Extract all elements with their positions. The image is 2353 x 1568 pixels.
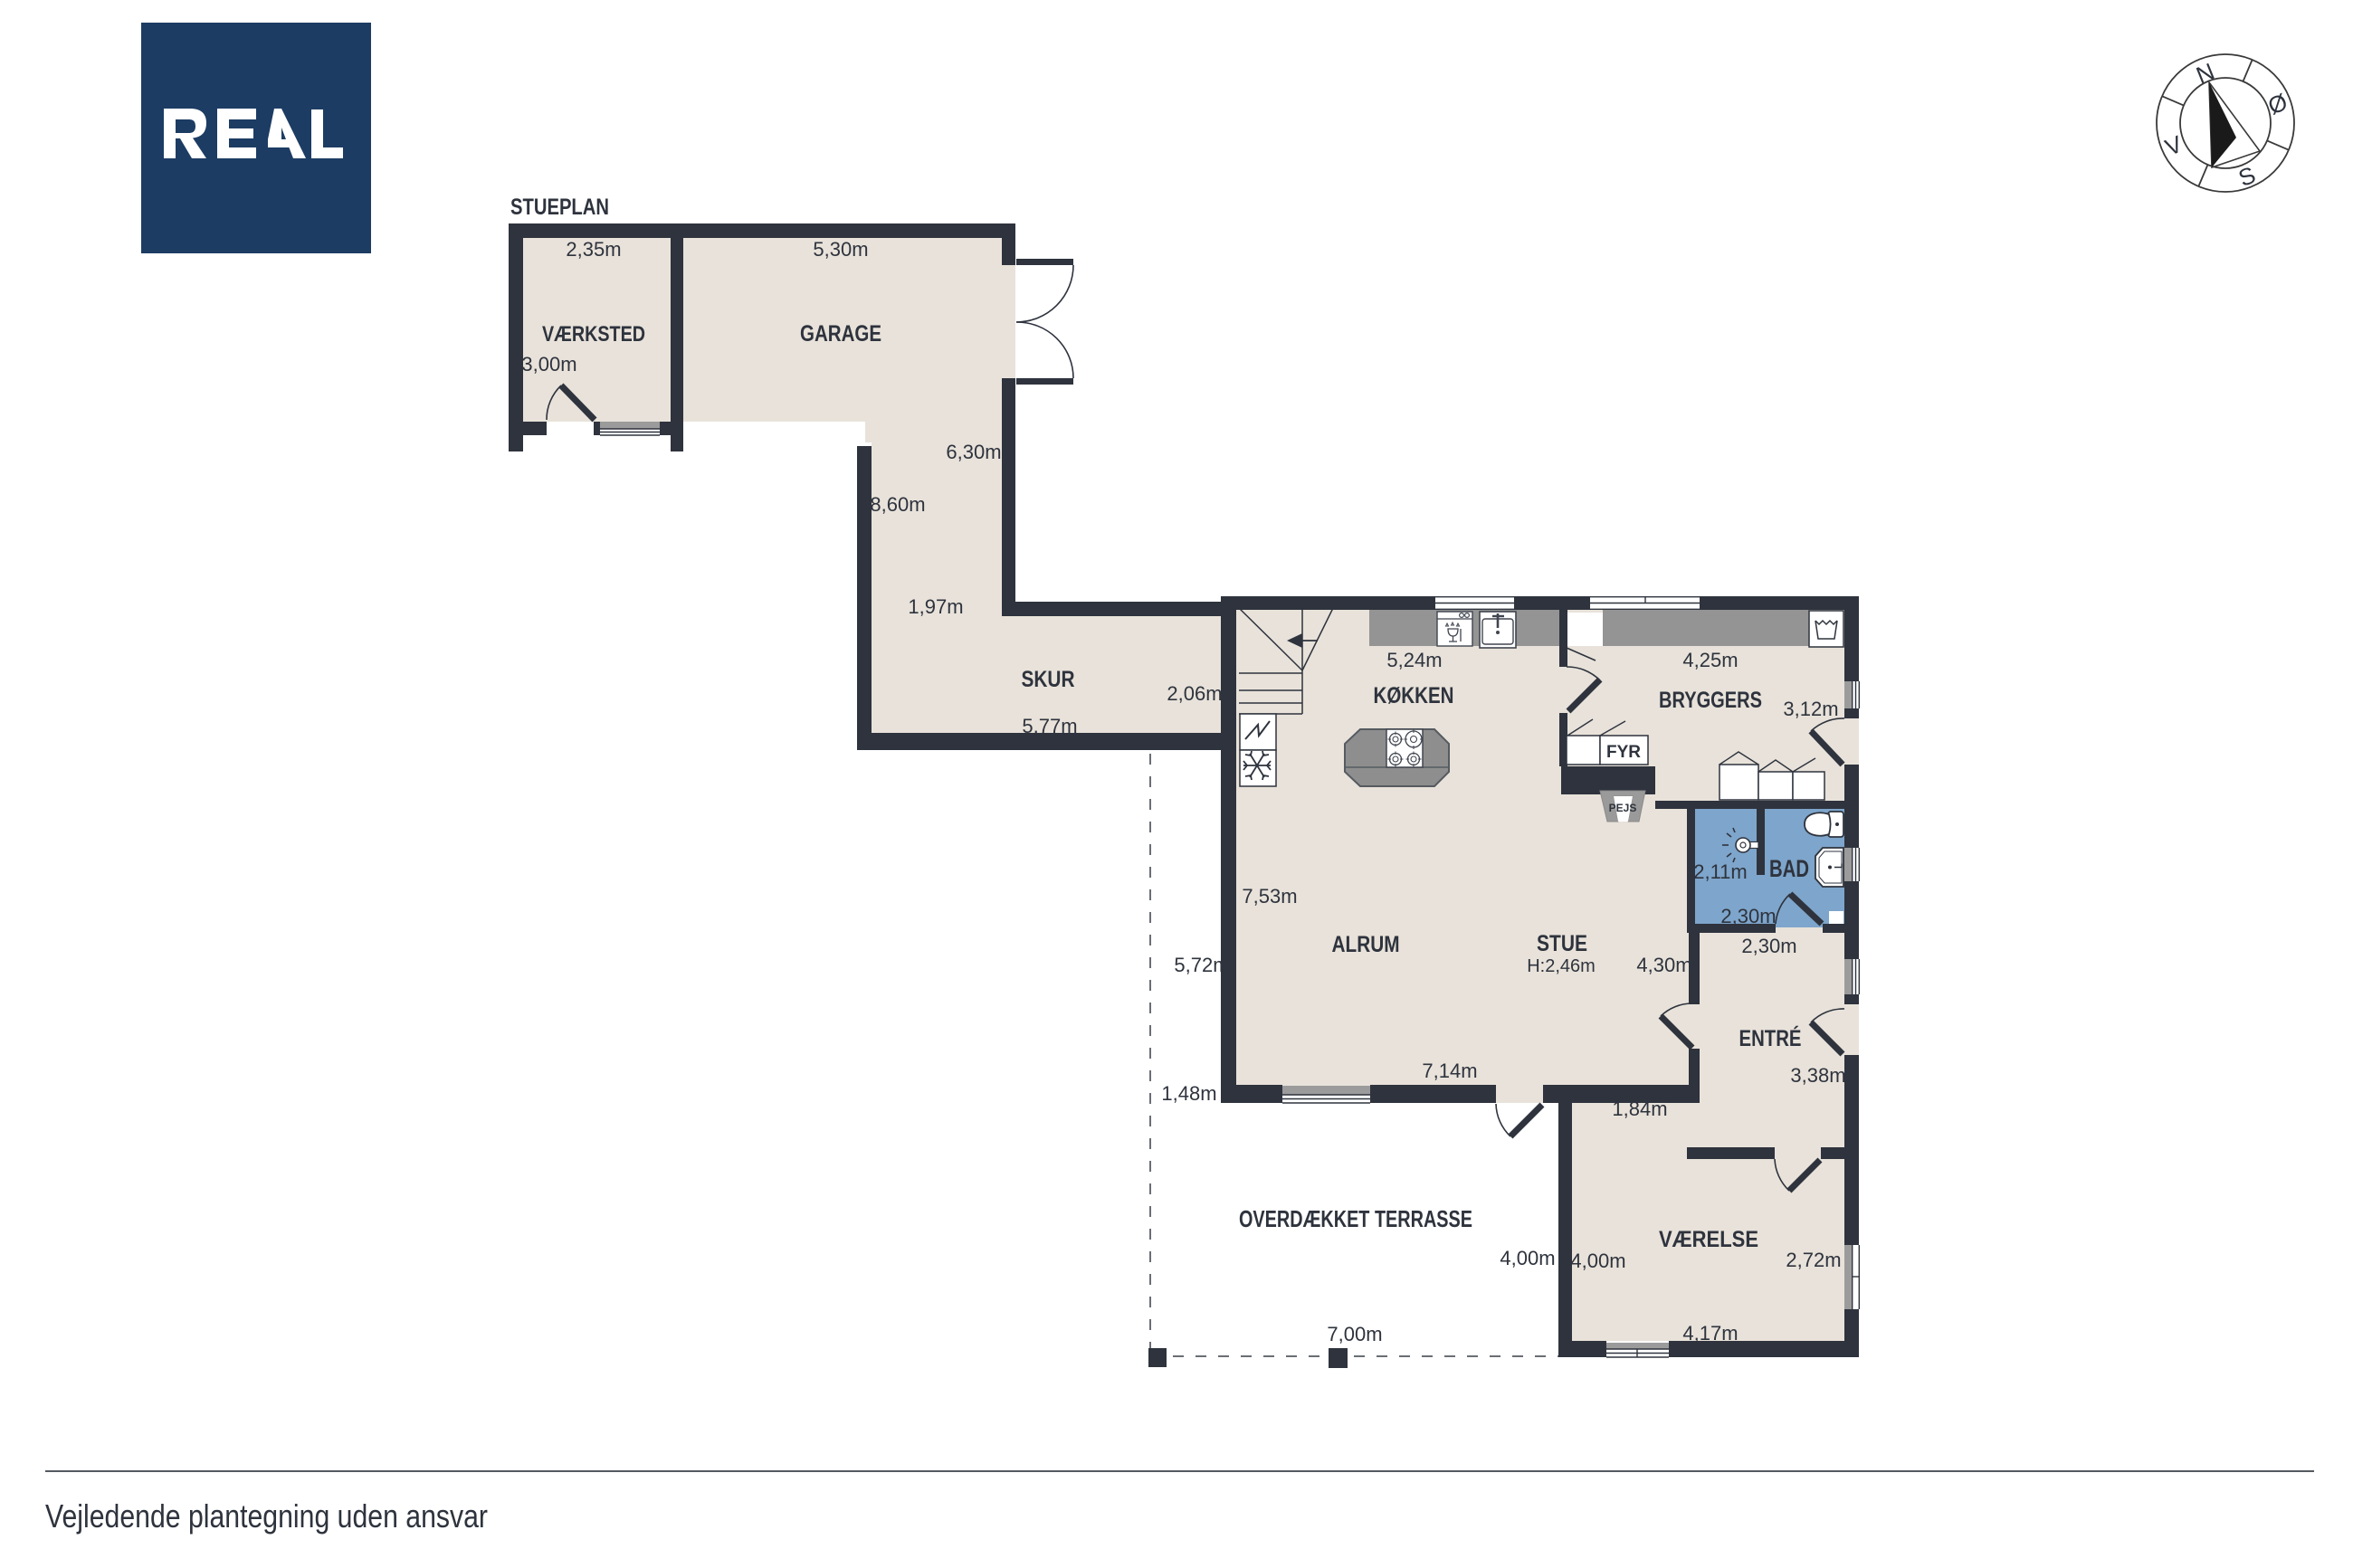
svg-text:OVERDÆKKET TERRASSE: OVERDÆKKET TERRASSE xyxy=(1239,1205,1472,1232)
svg-text:2,11m: 2,11m xyxy=(1693,860,1748,883)
svg-text:ENTRÉ: ENTRÉ xyxy=(1739,1025,1802,1051)
svg-text:STUEPLAN: STUEPLAN xyxy=(510,195,609,220)
svg-text:1,97m: 1,97m xyxy=(908,595,963,618)
svg-text:Vejledende plantegning uden an: Vejledende plantegning uden ansvar xyxy=(45,1497,488,1535)
svg-text:2,30m: 2,30m xyxy=(1720,905,1776,927)
svg-text:KØKKEN: KØKKEN xyxy=(1374,683,1454,708)
svg-text:4,00m: 4,00m xyxy=(1570,1250,1625,1272)
svg-text:ALRUM: ALRUM xyxy=(1332,932,1400,957)
svg-text:3,12m: 3,12m xyxy=(1783,698,1838,720)
svg-text:5,30m: 5,30m xyxy=(813,238,868,261)
svg-text:3,38m: 3,38m xyxy=(1790,1064,1845,1087)
svg-text:7,53m: 7,53m xyxy=(1242,885,1297,908)
svg-text:2,30m: 2,30m xyxy=(1741,935,1796,957)
svg-text:PEJS: PEJS xyxy=(1609,802,1637,814)
svg-text:5,24m: 5,24m xyxy=(1386,649,1442,671)
svg-text:7,00m: 7,00m xyxy=(1327,1323,1382,1345)
svg-text:4,25m: 4,25m xyxy=(1682,649,1738,671)
svg-text:6,30m: 6,30m xyxy=(946,441,1001,463)
svg-text:1,84m: 1,84m xyxy=(1612,1098,1667,1120)
svg-text:2,35m: 2,35m xyxy=(566,238,621,261)
svg-text:2,72m: 2,72m xyxy=(1786,1249,1841,1271)
svg-text:4,00m: 4,00m xyxy=(1500,1247,1555,1269)
svg-text:GARAGE: GARAGE xyxy=(800,321,881,347)
svg-text:5,77m: 5,77m xyxy=(1022,715,1077,737)
svg-text:2,06m: 2,06m xyxy=(1167,682,1222,705)
svg-text:BRYGGERS: BRYGGERS xyxy=(1659,688,1762,713)
svg-text:BAD: BAD xyxy=(1769,855,1809,882)
svg-text:SKUR: SKUR xyxy=(1022,667,1075,692)
svg-text:VÆRELSE: VÆRELSE xyxy=(1659,1227,1758,1252)
svg-text:4,30m: 4,30m xyxy=(1636,954,1691,976)
svg-text:VÆRKSTED: VÆRKSTED xyxy=(542,322,645,347)
svg-text:H:2,46m: H:2,46m xyxy=(1527,956,1596,976)
svg-text:8,60m: 8,60m xyxy=(870,493,925,516)
svg-text:7,14m: 7,14m xyxy=(1422,1060,1477,1082)
svg-text:3,00m: 3,00m xyxy=(521,353,576,375)
svg-text:4,17m: 4,17m xyxy=(1682,1322,1738,1345)
svg-text:STUE: STUE xyxy=(1537,931,1587,956)
svg-text:1,48m: 1,48m xyxy=(1161,1082,1216,1105)
svg-text:FYR: FYR xyxy=(1606,743,1641,762)
svg-text:5,72m: 5,72m xyxy=(1174,954,1229,976)
